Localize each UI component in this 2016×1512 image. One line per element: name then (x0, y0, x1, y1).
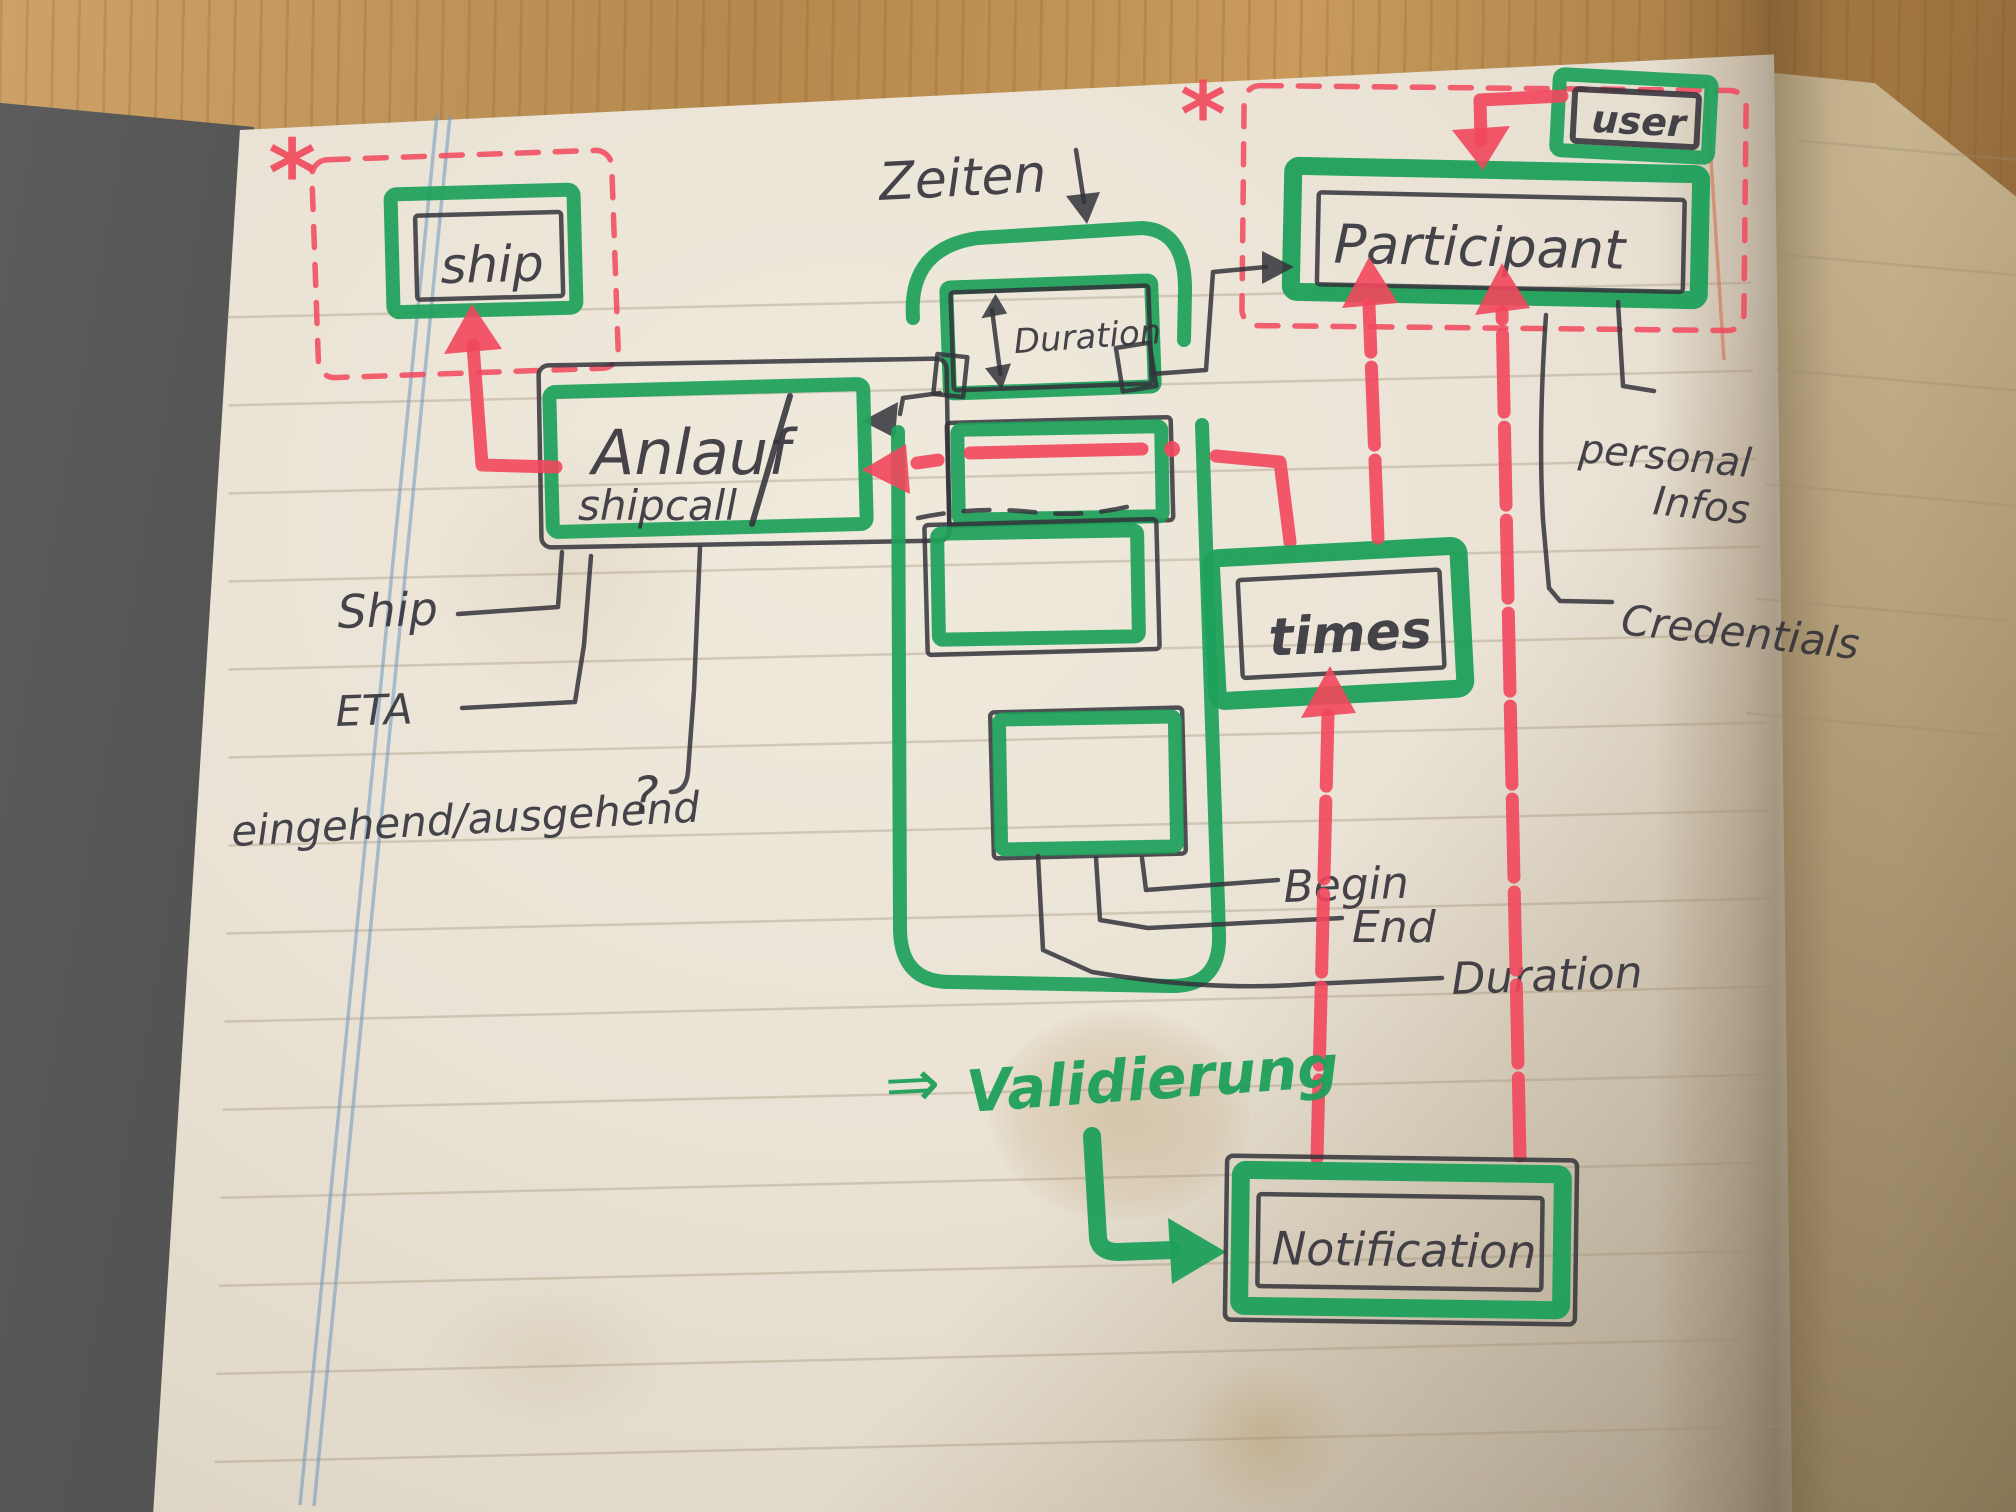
shipcall-label: shipcall (578, 481, 737, 530)
diagram-ink-layer: * ship * user Participant (0, 0, 2016, 1512)
user-box: user (1556, 74, 1712, 158)
in-out-question-mark: ? (632, 766, 659, 824)
credentials-label: Credentials (1619, 595, 1862, 669)
ruled-lines (189, 283, 1791, 1462)
in-out-label: eingehend/ausgehend (230, 782, 701, 855)
asterisk-right: * (1180, 63, 1226, 166)
ship-box-label: ship (440, 234, 545, 295)
duration-attr-label: Duration (1451, 947, 1644, 1005)
ship-box: ship (390, 190, 576, 313)
green-arrow-to-notification (1092, 1136, 1226, 1284)
anlauf-attribute-lines (458, 548, 700, 792)
personal-infos-label-line2: Infos (1651, 478, 1752, 534)
red-arrow-user-to-participant (1452, 96, 1562, 170)
notebook-photo: * ship * user Participant (0, 0, 2016, 1512)
times-box-label: times (1267, 600, 1433, 668)
validierung-arrow: ⇒ (883, 1044, 942, 1124)
zeiten-group-container (898, 417, 1219, 986)
user-box-label: user (1591, 97, 1690, 146)
notification-box-label: Notification (1271, 1221, 1536, 1279)
ship-attr-label: Ship (336, 582, 438, 639)
eta-label: ETA (335, 684, 414, 736)
notification-box: Notification (1225, 1156, 1577, 1325)
times-box: times (1211, 546, 1466, 702)
personal-infos-label-line1: personal (1576, 426, 1753, 487)
asterisk-left: * (268, 120, 316, 227)
anlauf-box: Anlauf shipcall (538, 358, 949, 547)
red-arrow-times-to-participant (1342, 257, 1398, 538)
zeiten-label: Zeiten (876, 144, 1048, 213)
validierung-label: Validierung (964, 1032, 1341, 1126)
zeiten-down-arrow (1066, 150, 1100, 224)
end-label: End (1352, 902, 1437, 953)
red-arrow-notification-to-participant (1475, 263, 1530, 1156)
duration-box-label: Duration (1012, 312, 1162, 362)
ink-arrow-duration-to-participant (1152, 251, 1294, 374)
